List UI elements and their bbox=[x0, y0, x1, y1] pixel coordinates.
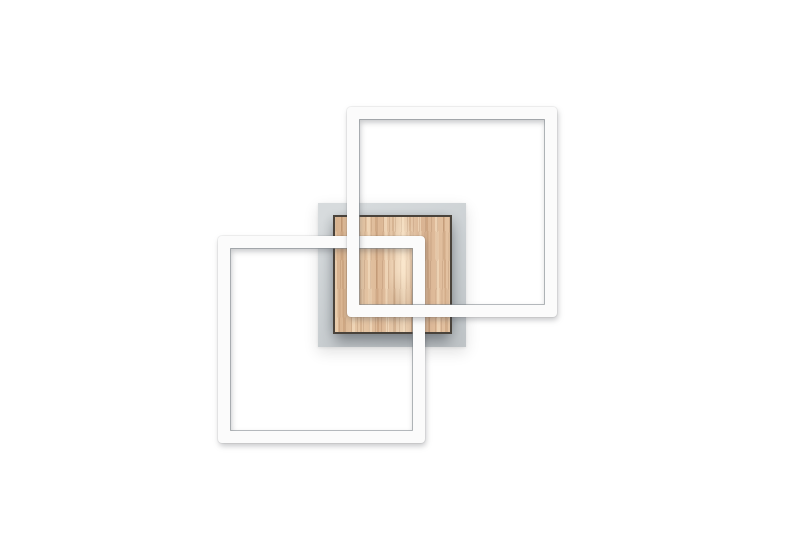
product-photo bbox=[0, 0, 800, 533]
led-frame-upper-right bbox=[347, 107, 557, 317]
